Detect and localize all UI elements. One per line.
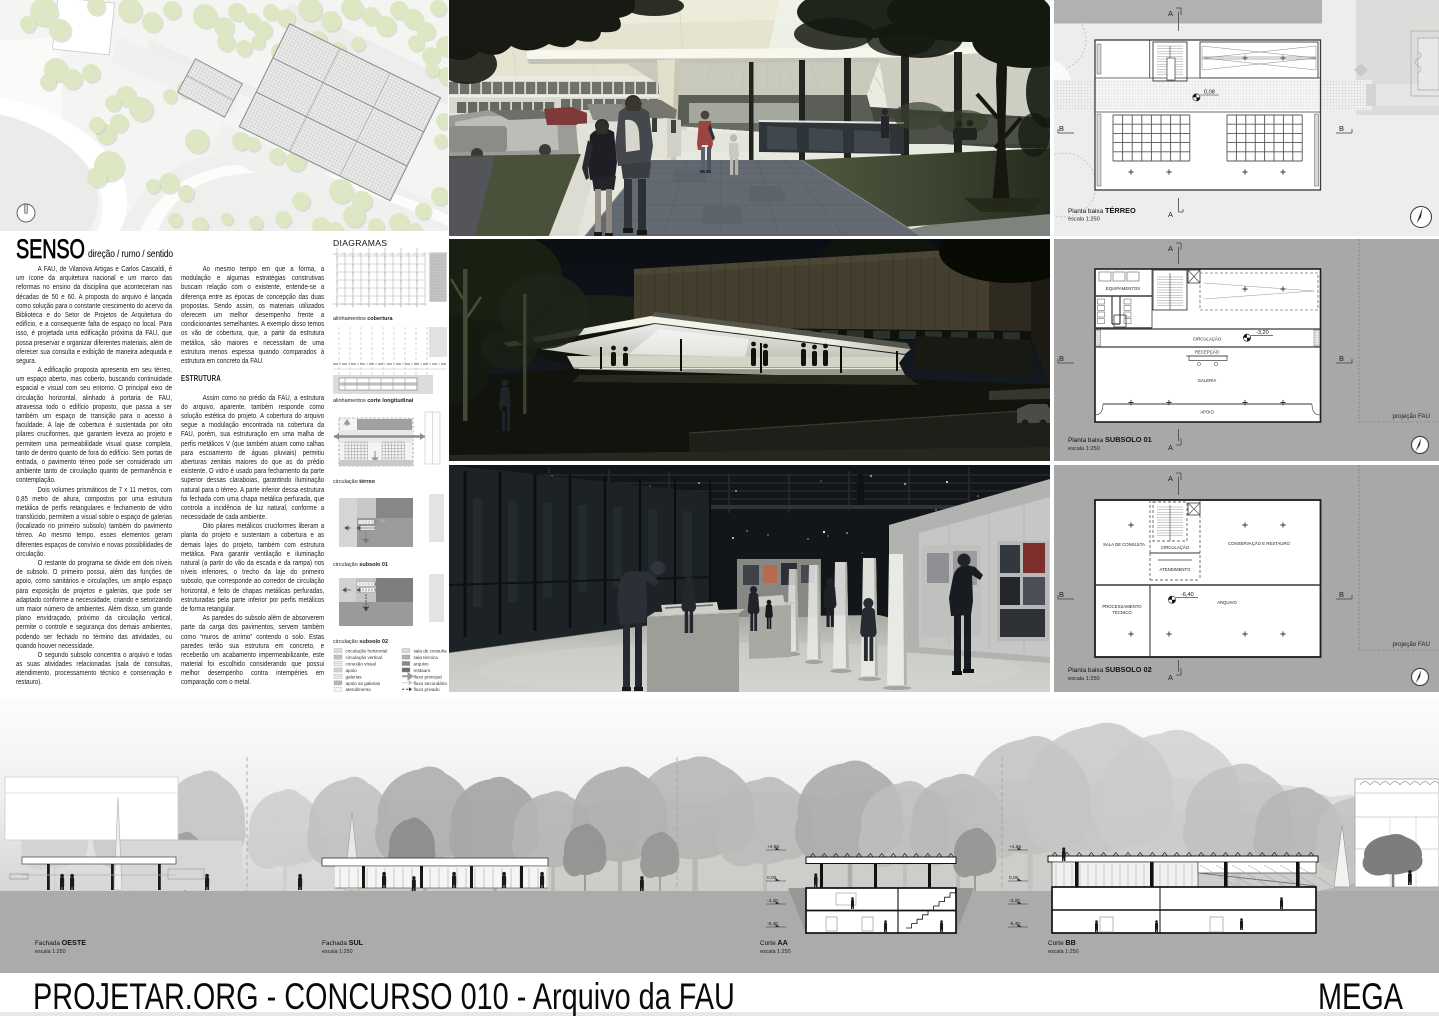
svg-text:Corte AA: Corte AA — [760, 938, 788, 947]
svg-text:B: B — [1059, 124, 1064, 133]
svg-text:circulação térreo: circulação térreo — [333, 479, 376, 485]
svg-text:Fachada SUL: Fachada SUL — [322, 938, 364, 947]
svg-text:SALA DE CONSULTA: SALA DE CONSULTA — [1103, 542, 1145, 547]
svg-text:apoio: apoio — [346, 668, 358, 673]
svg-text:restauro: restauro — [414, 668, 431, 673]
svg-text:-3,20: -3,20 — [1009, 898, 1020, 904]
svg-text:DIAGRAMAS: DIAGRAMAS — [333, 238, 387, 248]
svg-text:A: A — [1168, 244, 1173, 253]
svg-text:0,00: 0,00 — [767, 875, 777, 881]
svg-text:circulação vertical: circulação vertical — [346, 655, 383, 660]
svg-text:-3,20: -3,20 — [767, 898, 778, 904]
svg-text:-3,20: -3,20 — [1256, 330, 1269, 336]
svg-text:projeção FAU: projeção FAU — [1393, 641, 1431, 648]
svg-text:CONSERVAÇÃO E RESTAURO: CONSERVAÇÃO E RESTAURO — [1228, 541, 1290, 546]
svg-text:TÉCNICO: TÉCNICO — [1112, 610, 1132, 615]
svg-text:A: A — [1168, 210, 1173, 219]
svg-text:GALERIA: GALERIA — [1198, 378, 1217, 383]
svg-text:apoio as galerias: apoio as galerias — [346, 681, 381, 686]
svg-text:escala 1:250: escala 1:250 — [1068, 446, 1100, 452]
svg-text:escala 1:250: escala 1:250 — [35, 949, 66, 955]
svg-text:galerias: galerias — [346, 674, 363, 679]
svg-text:escala 1:250: escala 1:250 — [322, 949, 353, 955]
svg-text:alinhamentos cobertura: alinhamentos cobertura — [333, 316, 394, 322]
svg-text:CIRCULAÇÃO: CIRCULAÇÃO — [1193, 337, 1222, 342]
svg-text:circulação subsolo 02: circulação subsolo 02 — [333, 639, 388, 645]
svg-text:arquivo: arquivo — [414, 661, 430, 666]
svg-text:Corte BB: Corte BB — [1048, 938, 1076, 947]
svg-text:CIRCULAÇÃO: CIRCULAÇÃO — [1161, 545, 1190, 550]
svg-text:A: A — [1168, 443, 1173, 452]
svg-text:Fachada OESTE: Fachada OESTE — [35, 938, 86, 947]
svg-text:B: B — [1059, 590, 1064, 599]
svg-text:fluxo principal: fluxo principal — [414, 674, 442, 679]
svg-text:escala 1:250: escala 1:250 — [1048, 949, 1079, 955]
svg-text:+4,65: +4,65 — [1009, 844, 1021, 850]
svg-text:A: A — [1168, 474, 1173, 483]
svg-text:Planta baixa TÉRREO: Planta baixa TÉRREO — [1068, 206, 1136, 215]
svg-text:RECEPÇÃO: RECEPÇÃO — [1195, 350, 1220, 355]
svg-text:escala 1:250: escala 1:250 — [1068, 676, 1100, 682]
svg-text:circulação horizontal: circulação horizontal — [346, 649, 388, 654]
svg-text:Planta baixa SUBSOLO 01: Planta baixa SUBSOLO 01 — [1068, 435, 1152, 444]
svg-text:0,08: 0,08 — [1204, 90, 1215, 96]
svg-text:ARQUIVO: ARQUIVO — [1217, 600, 1237, 605]
svg-text:0,00: 0,00 — [1009, 875, 1019, 881]
svg-text:-6,40: -6,40 — [1009, 921, 1020, 927]
svg-text:+4,65: +4,65 — [767, 844, 779, 850]
svg-text:atendimento: atendimento — [346, 687, 372, 692]
svg-text:B: B — [1339, 590, 1344, 599]
svg-text:-6,40: -6,40 — [1181, 592, 1194, 598]
svg-text:circulação subsolo 01: circulação subsolo 01 — [333, 562, 388, 568]
svg-text:A: A — [1168, 9, 1173, 18]
svg-text:Planta baixa SUBSOLO 02: Planta baixa SUBSOLO 02 — [1068, 665, 1152, 674]
svg-text:projeção FAU: projeção FAU — [1393, 413, 1431, 420]
svg-text:sala de consulta: sala de consulta — [414, 649, 448, 654]
svg-text:ATENDIMENTO: ATENDIMENTO — [1160, 567, 1192, 572]
svg-text:fluxo secundário: fluxo secundário — [414, 681, 448, 686]
svg-text:escala 1:250: escala 1:250 — [760, 949, 791, 955]
svg-text:APOIO: APOIO — [1200, 410, 1214, 415]
svg-text:B: B — [1339, 354, 1344, 363]
svg-text:A: A — [1168, 673, 1173, 682]
svg-text:conexão visual: conexão visual — [346, 661, 376, 666]
svg-text:PROCESSAMENTO: PROCESSAMENTO — [1102, 604, 1142, 609]
svg-text:B: B — [1339, 124, 1344, 133]
svg-text:-6,40: -6,40 — [767, 921, 778, 927]
svg-text:B: B — [1059, 354, 1064, 363]
svg-text:sala técnica: sala técnica — [414, 655, 439, 660]
svg-text:alinhamentos corte longitudina: alinhamentos corte longitudinal — [333, 398, 414, 404]
svg-text:EQUIPAMENTOS: EQUIPAMENTOS — [1106, 286, 1140, 291]
svg-text:escala 1:250: escala 1:250 — [1068, 217, 1100, 223]
svg-text:fluxo privado: fluxo privado — [414, 687, 440, 692]
